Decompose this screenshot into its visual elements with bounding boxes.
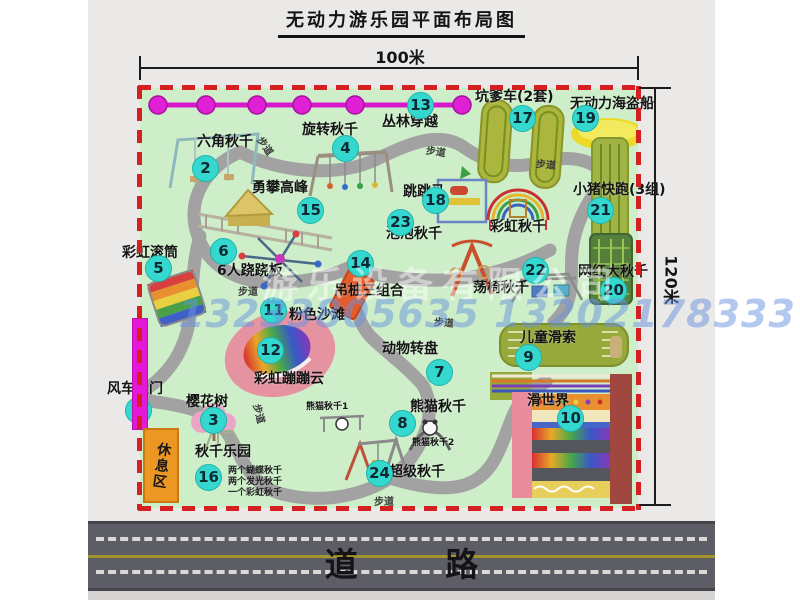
park-map: 休息区 风车大门1六角秋千2樱花树3旋转秋千4彩虹滚筒56人跷跷板6动物转盘7熊… bbox=[140, 88, 638, 508]
attraction-label: 六角秋千 bbox=[197, 135, 253, 149]
attraction-number-badge: 5 bbox=[145, 255, 172, 282]
attraction-number-badge: 15 bbox=[297, 197, 324, 224]
attraction-label: 吊桩三组合 bbox=[334, 284, 404, 298]
attraction-number-badge: 14 bbox=[347, 250, 374, 277]
road: 道 路 bbox=[88, 521, 715, 591]
attraction-label: 彩虹蹦蹦云 bbox=[254, 372, 324, 386]
footpath-label: 步道 bbox=[433, 313, 454, 330]
park-plan-image: 无动力游乐园平面布局图 100米 120米 bbox=[0, 0, 800, 600]
attraction-number-badge: 16 bbox=[195, 464, 222, 491]
dimension-tick bbox=[637, 56, 639, 80]
map-border-right bbox=[636, 86, 641, 510]
attraction-label: 熊猫秋千 bbox=[410, 400, 466, 414]
attraction-sub-labels: 两个蝴蝶秋千两个发光秋千一个彩虹秋千 bbox=[228, 466, 282, 499]
footpath-label: 步道 bbox=[425, 142, 447, 160]
attraction-number-badge: 21 bbox=[587, 197, 614, 224]
rest-area-label: 休息区 bbox=[148, 440, 174, 490]
road-label: 道 路 bbox=[88, 538, 715, 586]
map-border-left bbox=[137, 86, 142, 510]
page-title: 无动力游乐园平面布局图 bbox=[88, 6, 715, 38]
attraction-label: 粉色沙滩 bbox=[289, 308, 345, 322]
dimension-tick bbox=[639, 87, 671, 89]
curb-strip bbox=[88, 591, 715, 600]
attraction-label: 熊猫秋千1 bbox=[306, 403, 348, 412]
map-border-bottom bbox=[138, 506, 642, 511]
attraction-number-badge: 11 bbox=[260, 297, 287, 324]
attraction-label: 勇攀高峰 bbox=[252, 181, 308, 195]
attraction-label: 秋千乐园 bbox=[195, 445, 251, 459]
attraction-number-badge: 7 bbox=[426, 359, 453, 386]
attraction-number-badge: 8 bbox=[389, 410, 416, 437]
attraction-number-badge: 9 bbox=[515, 344, 542, 371]
attraction-number-badge: 18 bbox=[422, 187, 449, 214]
footpath-label: 步道 bbox=[238, 283, 258, 298]
map-border-top bbox=[138, 85, 642, 90]
attraction-label: 超级秋千 bbox=[389, 465, 445, 479]
dimension-line-right bbox=[654, 88, 656, 506]
attraction-number-badge: 10 bbox=[557, 405, 584, 432]
attraction-label: 坑爹车(2套) bbox=[475, 90, 554, 104]
attraction-number-badge: 17 bbox=[509, 105, 536, 132]
attraction-number-badge: 12 bbox=[257, 337, 284, 364]
rest-area: 休息区 bbox=[143, 428, 179, 503]
attraction-label: 动物转盘 bbox=[382, 342, 438, 356]
footpath-label: 步道 bbox=[535, 155, 556, 172]
attraction-number-badge: 13 bbox=[407, 92, 434, 119]
attraction-label: 6人跷跷板 bbox=[217, 264, 283, 278]
dimension-height-label: 120米 bbox=[661, 255, 685, 304]
attraction-label: 小猪快跑(3组) bbox=[573, 183, 666, 197]
attraction-label: 丛林穿越 bbox=[382, 115, 438, 129]
footpath-label: 步道 bbox=[250, 402, 270, 425]
attraction-number-badge: 4 bbox=[332, 135, 359, 162]
footpath-label: 步道 bbox=[254, 133, 278, 158]
attraction-label: 儿童滑索 bbox=[520, 331, 576, 345]
attraction-label: 荡椅秋千 bbox=[473, 281, 529, 295]
attraction-number-badge: 6 bbox=[210, 238, 237, 265]
dimension-width-label: 100米 bbox=[340, 44, 460, 68]
dimension-tick bbox=[639, 504, 671, 506]
attraction-number-badge: 20 bbox=[600, 277, 627, 304]
attraction-number-badge: 2 bbox=[192, 155, 219, 182]
attraction-number-badge: 23 bbox=[387, 209, 414, 236]
attraction-number-badge: 24 bbox=[366, 460, 393, 487]
attraction-number-badge: 3 bbox=[200, 407, 227, 434]
attraction-number-badge: 19 bbox=[572, 105, 599, 132]
map-annotations: 风车大门1六角秋千2樱花树3旋转秋千4彩虹滚筒56人跷跷板6动物转盘7熊猫秋千8… bbox=[140, 88, 638, 508]
title-text: 无动力游乐园平面布局图 bbox=[278, 6, 525, 38]
attraction-label: 熊猫秋千2 bbox=[412, 439, 454, 448]
attraction-label: 彩虹秋千 bbox=[490, 220, 546, 234]
attraction-label: 樱花树 bbox=[186, 395, 228, 409]
dimension-tick bbox=[139, 56, 141, 80]
attraction-number-badge: 22 bbox=[522, 257, 549, 284]
